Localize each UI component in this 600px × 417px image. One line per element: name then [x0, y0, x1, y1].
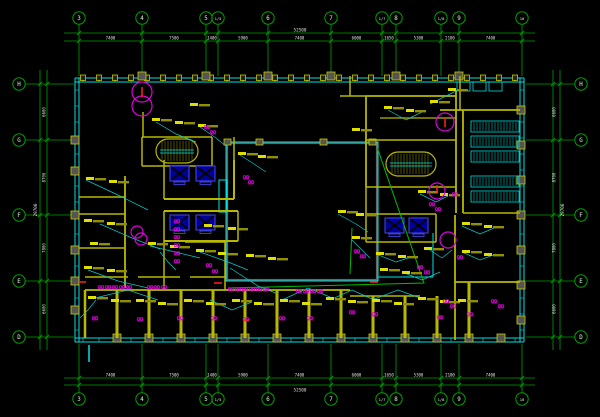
dim-overall: 29700 [33, 203, 39, 216]
outlet-symbol [310, 290, 313, 293]
outlet-symbol [279, 317, 282, 320]
outlet-symbol [252, 288, 255, 291]
device-tag [84, 266, 92, 269]
device-tag [430, 100, 438, 103]
device-tag [109, 180, 117, 183]
grid-bubble-label: H [17, 82, 21, 88]
device-tag [148, 242, 156, 245]
device-tag-text [205, 250, 216, 252]
grid-bubble-label: 1/7 [379, 397, 386, 402]
dim-text: 7400 [106, 373, 116, 378]
device-tag [228, 227, 236, 230]
device-tag-text [93, 267, 104, 269]
grid-bubble-label: 7 [329, 397, 333, 403]
device-tag-text [365, 214, 376, 216]
outlet-symbol [174, 260, 177, 263]
outlet-symbol [129, 286, 132, 289]
device-tag-text [493, 254, 504, 256]
column-block [202, 72, 210, 80]
device-tag-text [93, 220, 104, 222]
dim-text: 6600 [41, 304, 46, 314]
device-tag-text [433, 248, 444, 250]
mullion-square [449, 75, 454, 81]
dim-text: 2100 [445, 373, 455, 378]
outlet-symbol [491, 300, 494, 303]
mullion-square [369, 75, 374, 81]
dimension-grid-layer: 3344551/51/566771/71/7881/81/8991010HHGG… [13, 12, 587, 405]
device-tag-text [389, 269, 400, 271]
outlet-symbol [174, 252, 177, 255]
outlet-symbol [210, 131, 213, 134]
outlet-symbol [435, 208, 438, 211]
outlet-symbol [150, 286, 153, 289]
device-tag [352, 128, 360, 131]
device-tag [107, 269, 115, 272]
outlet-symbol [98, 286, 101, 289]
rack-box [473, 82, 486, 91]
mullion-square [97, 75, 102, 81]
outlet-symbol [494, 300, 497, 303]
outlet-symbol [427, 271, 430, 274]
outlet-symbol [299, 290, 302, 293]
rack-box [489, 82, 502, 91]
device-tag [380, 268, 388, 271]
device-tag-text [116, 223, 127, 225]
outlet-symbol [375, 313, 378, 316]
dim-overall: 29700 [560, 203, 566, 216]
mullion-square [193, 75, 198, 81]
device-tag-text [145, 300, 156, 302]
grid-bubble-label: 5 [204, 16, 208, 22]
dim-text: 6600 [41, 107, 46, 117]
device-tag [458, 299, 466, 302]
outlet-symbol [256, 288, 259, 291]
mullion-square [433, 75, 438, 81]
outlet-symbol [105, 286, 108, 289]
dim-text: 7400 [486, 373, 496, 378]
mullion-square [417, 75, 422, 81]
device-tag [232, 299, 240, 302]
cad-viewport[interactable]: 3344551/51/566771/71/7881/81/8991010HHGG… [0, 0, 600, 417]
device-tag-text [116, 270, 127, 272]
outlet-symbol [213, 131, 216, 134]
device-tag [152, 118, 160, 121]
device-tag-text [393, 107, 404, 109]
mullion-square [81, 75, 86, 81]
grid-bubble-label: 4 [140, 397, 144, 403]
device-tag-text [167, 303, 178, 305]
column-block [517, 246, 525, 254]
device-tag-text [247, 153, 258, 155]
elevator-sill [200, 182, 211, 185]
junction-circle [132, 96, 152, 116]
tags-layer [84, 88, 504, 305]
column-block [320, 139, 327, 145]
grid-bubble-label: D [17, 335, 21, 341]
dim-text: 7400 [295, 373, 305, 378]
device-tag-text [199, 104, 210, 106]
device-tag [376, 252, 384, 255]
device-tag-text [467, 300, 478, 302]
outlet-symbol [245, 288, 248, 291]
device-tag [280, 299, 288, 302]
device-tag [424, 247, 432, 250]
outlet-symbol [177, 260, 180, 263]
elevator-sill [200, 231, 211, 234]
mullion-square [257, 75, 262, 81]
device-tag [90, 242, 98, 245]
mullion-square [273, 75, 278, 81]
device-tag [196, 249, 204, 252]
circuit-wire [80, 300, 96, 318]
device-tag [175, 121, 183, 124]
mullion-square [241, 75, 246, 81]
outlet-symbol [501, 305, 504, 308]
device-tag-text [179, 246, 190, 248]
elevator-sill [174, 182, 185, 185]
column-block [517, 316, 525, 324]
dim-text: 5300 [414, 373, 424, 378]
outlet-symbol [161, 286, 164, 289]
outlet-symbol [214, 317, 217, 320]
mullion-square [177, 75, 182, 81]
device-tag-text [357, 301, 368, 303]
outlet-symbol [424, 271, 427, 274]
device-tag-text [457, 89, 468, 91]
device-tag [86, 177, 94, 180]
column-block [71, 277, 79, 285]
device-tag [352, 236, 360, 239]
grid-bubble-label: 9 [457, 16, 461, 22]
mullion-square [337, 75, 342, 81]
outlet-symbol [92, 317, 95, 320]
outlet-symbol [357, 250, 360, 253]
grid-bubble-label: 7 [329, 16, 333, 22]
device-tag-text [439, 101, 450, 103]
device-tag-text [407, 256, 418, 258]
column-block [264, 72, 272, 80]
device-tag-text [95, 178, 106, 180]
outlet-symbol [154, 286, 157, 289]
dim-text: 1400 [207, 36, 217, 41]
column-block [455, 72, 463, 80]
device-tag-text [335, 298, 346, 300]
outlet-symbol [215, 270, 218, 273]
device-tag-text [237, 228, 248, 230]
outlet-symbol [206, 264, 209, 267]
outlet-symbol [438, 208, 441, 211]
circuit-wire [160, 252, 176, 270]
column-block [517, 211, 525, 219]
mullion-square [465, 75, 470, 81]
device-tag-text [361, 237, 372, 239]
device-tag-text [215, 303, 226, 305]
device-tag [218, 252, 226, 255]
outlet-symbol [320, 290, 323, 293]
column-block [71, 136, 79, 144]
device-tag-text [193, 300, 204, 302]
device-tag [204, 224, 212, 227]
grid-bubble-label: 10 [520, 397, 525, 402]
grid-bubble-label: 1/5 [215, 397, 222, 402]
mullion-square [289, 75, 294, 81]
device-tag [184, 299, 192, 302]
grid-bubble-label: 4 [140, 16, 144, 22]
outlet-symbol [95, 317, 98, 320]
racks-layer [457, 82, 519, 202]
grid-bubble-label: 1/5 [215, 16, 222, 21]
dim-text: 5900 [238, 36, 248, 41]
grid-bubble-label: G [579, 138, 583, 144]
mullion-square [385, 75, 390, 81]
mullion-square [401, 75, 406, 81]
device-tag [406, 109, 414, 112]
outlet-symbol [420, 266, 423, 269]
grid-bubble-label: G [17, 138, 21, 144]
outlet-symbol [363, 255, 366, 258]
outlet-symbol [164, 286, 167, 289]
grid-bubble-label: 1/8 [438, 397, 446, 402]
device-tag [107, 222, 115, 225]
outlet-symbol [263, 288, 266, 291]
dim-text: 7400 [295, 36, 305, 41]
outlet-symbol [140, 318, 143, 321]
outlet-symbol [251, 181, 254, 184]
device-tag-text [471, 223, 482, 225]
device-tag [418, 190, 426, 193]
device-tag [84, 219, 92, 222]
dim-text: 2100 [445, 36, 455, 41]
mullion-square [321, 75, 326, 81]
column-block [256, 139, 263, 145]
mullion-square [353, 75, 358, 81]
device-tag [190, 103, 198, 106]
dim-text: 8700 [41, 172, 46, 182]
mullion-square [305, 75, 310, 81]
outlet-symbol [249, 288, 252, 291]
device-tag [394, 302, 402, 305]
device-tag [158, 302, 166, 305]
grid-bubble-label: 6 [266, 397, 270, 403]
outlet-symbol [238, 288, 241, 291]
device-tag [418, 297, 426, 300]
device-tag-text [277, 258, 288, 260]
mullion-square [225, 75, 230, 81]
dim-text: 6000 [352, 373, 362, 378]
outlet-symbol [119, 286, 122, 289]
device-tag [246, 254, 254, 257]
device-tag-text [161, 119, 172, 121]
dim-text: 7800 [41, 243, 46, 253]
device-tag [258, 155, 266, 158]
outlet-symbol [296, 290, 299, 293]
grid-bubble-label: 3 [77, 16, 81, 22]
device-tag-text [471, 251, 482, 253]
device-tag [372, 299, 380, 302]
device-tag-text [255, 255, 266, 257]
outlet-symbol [177, 236, 180, 239]
grid-bubble-label: 6 [266, 16, 270, 22]
device-tag [484, 225, 492, 228]
grid-bubble-label: 9 [457, 397, 461, 403]
outlet-symbol [228, 288, 231, 291]
device-tag [448, 88, 456, 91]
dim-text: 6600 [551, 304, 556, 314]
outlet-symbol [248, 181, 251, 184]
device-tag [254, 302, 262, 305]
junction-circle [131, 226, 143, 238]
device-tag [206, 302, 214, 305]
device-tag [302, 302, 310, 305]
grid-bubble-label: 8 [394, 16, 398, 22]
column-block [71, 167, 79, 175]
outlet-symbol [246, 176, 249, 179]
device-tag [88, 296, 96, 299]
outlet-symbol [352, 311, 355, 314]
outlet-symbol [460, 256, 463, 259]
device-tag [462, 222, 470, 225]
grid-bubble-label: 5 [204, 397, 208, 403]
dim-text: 7400 [106, 36, 116, 41]
device-tag-text [427, 298, 438, 300]
dim-overall: 52500 [294, 388, 307, 394]
grid-bubble-label: E [17, 279, 21, 285]
outlet-symbol [470, 313, 473, 316]
circuit-wire [372, 290, 420, 300]
mullion-square [129, 75, 134, 81]
device-tag-text [227, 253, 238, 255]
device-tag [338, 210, 346, 213]
junction-circle [440, 232, 456, 248]
grid-bubble-label: E [579, 279, 583, 285]
device-tag-text [157, 243, 168, 245]
dim-text: 5900 [238, 373, 248, 378]
device-tag-text [241, 300, 252, 302]
grid-bubble-label: F [17, 213, 21, 219]
device-tag [111, 299, 119, 302]
outlet-symbol [354, 250, 357, 253]
column-block [497, 334, 505, 342]
outlets-layer [92, 126, 504, 321]
outlet-symbol [212, 270, 215, 273]
grid-bubble-label: 1/8 [438, 16, 446, 21]
outlet-symbol [137, 318, 140, 321]
dim-text: 6600 [551, 107, 556, 117]
outlet-symbol [259, 288, 262, 291]
floor-plan-drawing: 3344551/51/566771/71/7881/81/8991010HHGG… [0, 0, 600, 417]
device-tag-text [361, 129, 372, 131]
grid-bubble-label: 10 [520, 16, 525, 21]
dim-text: 5300 [414, 36, 424, 41]
outlet-symbol [243, 176, 246, 179]
mullion-square [513, 75, 518, 81]
dim-text: 7400 [486, 36, 496, 41]
device-tag [462, 250, 470, 253]
mullion-square [481, 75, 486, 81]
device-tag [402, 271, 410, 274]
outlet-symbol [317, 290, 320, 293]
circuit-wire [86, 180, 148, 210]
device-tag [326, 297, 334, 300]
dim-overall: 52500 [294, 28, 307, 34]
device-tag [398, 255, 406, 258]
outlet-symbol [440, 316, 443, 319]
device-tag-text [411, 272, 422, 274]
outlet-symbol [450, 305, 453, 308]
outlet-symbol [177, 317, 180, 320]
dim-text: 1400 [207, 373, 217, 378]
junction-circle [135, 233, 147, 245]
elevator-sill [413, 234, 424, 237]
dim-text: 1650 [384, 373, 394, 378]
column-block [517, 141, 525, 149]
device-tag-text [263, 303, 274, 305]
outlet-symbol [122, 286, 125, 289]
device-tag-text [311, 303, 322, 305]
column-block [138, 72, 146, 80]
grid-bubble-label: F [579, 213, 583, 219]
device-tag-text [493, 226, 504, 228]
outlet-symbol [303, 290, 306, 293]
outlet-symbol [126, 286, 129, 289]
device-tag [384, 106, 392, 109]
device-tag [268, 257, 276, 260]
outlet-symbol [498, 305, 501, 308]
outlet-symbol [349, 311, 352, 314]
column-block [71, 306, 79, 314]
device-tag [348, 300, 356, 303]
outlet-symbol [242, 288, 245, 291]
column-block [71, 246, 79, 254]
circuit-wire [88, 270, 148, 288]
dim-text: 8700 [551, 172, 556, 182]
device-tag [484, 253, 492, 256]
device-tag-text [385, 253, 396, 255]
elevator-sill [174, 231, 185, 234]
device-tag-text [289, 300, 300, 302]
outlet-symbol [282, 317, 285, 320]
outlet-symbol [457, 256, 460, 259]
outlet-symbol [108, 286, 111, 289]
outlet-symbol [432, 203, 435, 206]
grid-bubble-label: D [579, 335, 583, 341]
column-block [392, 72, 400, 80]
outlet-symbol [157, 286, 160, 289]
outlet-symbol [177, 244, 180, 247]
mullion-square [113, 75, 118, 81]
circuit-wire [338, 214, 368, 232]
device-tag-text [267, 156, 278, 158]
outlet-symbol [174, 236, 177, 239]
dim-text: 7800 [551, 243, 556, 253]
device-tag-text [97, 297, 108, 299]
device-tag-text [118, 181, 129, 183]
outlet-symbol [112, 286, 115, 289]
grid-bubble-label: H [579, 82, 583, 88]
device-tag [238, 152, 246, 155]
stair-well [386, 152, 436, 176]
device-tag [356, 213, 364, 216]
device-tag-text [99, 243, 110, 245]
mullion-square [497, 75, 502, 81]
elevator-sill [389, 234, 400, 237]
device-tag-text [184, 122, 195, 124]
column-block [71, 211, 79, 219]
dim-text: 7500 [169, 36, 179, 41]
column-block [224, 139, 231, 145]
outlet-symbol [310, 317, 313, 320]
outlet-symbol [115, 286, 118, 289]
